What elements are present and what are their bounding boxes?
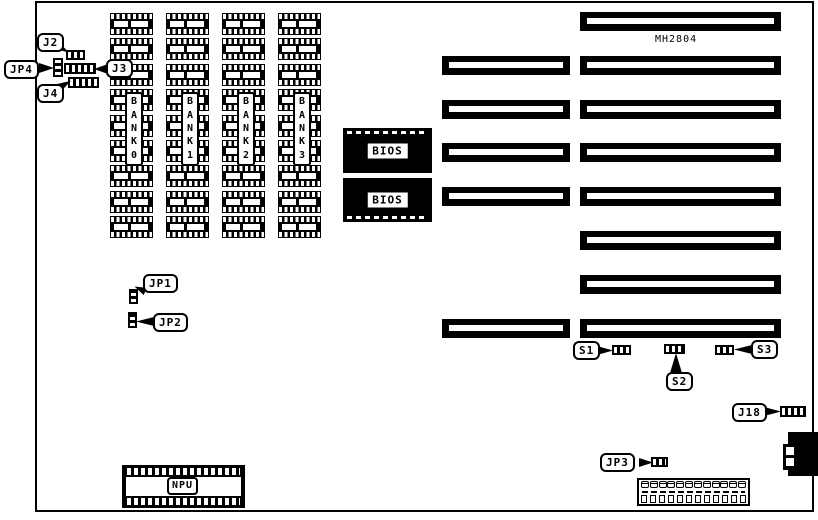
power-socket xyxy=(668,495,674,503)
power-socket xyxy=(686,495,692,503)
power-pin xyxy=(650,481,658,488)
memory-chip xyxy=(222,216,265,238)
connector-j2 xyxy=(66,50,85,60)
expansion-slot-segment xyxy=(580,143,781,162)
callout-j18: J18 xyxy=(732,403,767,422)
power-pin xyxy=(659,481,667,488)
power-socket xyxy=(713,495,719,503)
connector-jp1 xyxy=(129,289,138,304)
expansion-slot-segment xyxy=(442,319,570,338)
connector-jp2 xyxy=(128,312,137,328)
power-socket xyxy=(704,495,710,503)
bios-chip-notch-stripe xyxy=(347,131,428,134)
motherboard-diagram: BANK0BANK1BANK2BANK3 MH2804 BIOS BIOS J2… xyxy=(0,0,818,520)
expansion-slot-segment xyxy=(580,275,781,294)
bios-chip-2: BIOS xyxy=(343,178,432,222)
memory-chip xyxy=(166,216,209,238)
memory-chip xyxy=(166,165,209,187)
memory-chip xyxy=(278,64,321,86)
power-pin xyxy=(694,481,702,488)
memory-chip xyxy=(222,165,265,187)
memory-chip xyxy=(278,191,321,213)
power-pin xyxy=(720,481,728,488)
bios-chip-1: BIOS xyxy=(343,128,432,173)
memory-chip xyxy=(110,191,153,213)
power-pin xyxy=(712,481,720,488)
power-socket xyxy=(722,495,728,503)
memory-chip xyxy=(166,191,209,213)
connector-jp4 xyxy=(53,58,63,77)
power-socket xyxy=(740,495,746,503)
callout-j2: J2 xyxy=(37,33,64,52)
memory-chip xyxy=(110,38,153,60)
expansion-slot-segment xyxy=(442,100,570,119)
switch-s1 xyxy=(612,345,631,355)
expansion-slot-segment xyxy=(580,12,781,31)
callout-jp2: JP2 xyxy=(153,313,188,332)
power-socket xyxy=(731,495,737,503)
switch-s3 xyxy=(715,345,734,355)
keyboard-connector-hole xyxy=(786,458,794,466)
memory-chip xyxy=(222,64,265,86)
power-socket xyxy=(695,495,701,503)
power-divider xyxy=(642,491,745,493)
memory-chip xyxy=(222,13,265,35)
power-pin xyxy=(685,481,693,488)
connector-j3 xyxy=(64,63,96,74)
power-pin xyxy=(738,481,746,488)
callout-j3: J3 xyxy=(106,59,133,78)
callout-s1: S1 xyxy=(573,341,600,360)
chip-label-mh2804: MH2804 xyxy=(655,34,697,45)
memory-chip xyxy=(278,38,321,60)
connector-jp3 xyxy=(651,457,668,467)
memory-chip xyxy=(278,13,321,35)
callout-jp1: JP1 xyxy=(143,274,178,293)
power-socket xyxy=(650,495,656,503)
memory-chip xyxy=(222,191,265,213)
bank-label: BANK3 xyxy=(293,92,311,166)
npu-pin-row xyxy=(127,468,240,475)
power-socket-row xyxy=(641,495,746,503)
callout-npu: NPU xyxy=(167,477,198,495)
bios-label: BIOS xyxy=(367,143,408,158)
connector-j4 xyxy=(68,77,99,88)
keyboard-connector-hole xyxy=(786,447,794,455)
callout-jp4: JP4 xyxy=(4,60,39,79)
callout-s2: S2 xyxy=(666,372,693,391)
memory-chip xyxy=(110,13,153,35)
bank-label: BANK0 xyxy=(125,92,143,166)
bios-chip-notch-stripe xyxy=(347,216,428,219)
power-pin xyxy=(667,481,675,488)
memory-chip xyxy=(166,13,209,35)
power-pin xyxy=(703,481,711,488)
expansion-slot-segment xyxy=(442,56,570,75)
expansion-slot-segment xyxy=(580,100,781,119)
expansion-slot-segment xyxy=(442,187,570,206)
callout-j4: J4 xyxy=(37,84,64,103)
bios-label: BIOS xyxy=(367,193,408,208)
memory-chip xyxy=(166,64,209,86)
memory-chip xyxy=(110,165,153,187)
memory-chip xyxy=(278,165,321,187)
callout-s3: S3 xyxy=(751,340,778,359)
expansion-slot-segment xyxy=(442,143,570,162)
expansion-slot-segment xyxy=(580,319,781,338)
power-socket xyxy=(659,495,665,503)
power-socket xyxy=(677,495,683,503)
power-pin xyxy=(729,481,737,488)
memory-chip xyxy=(222,38,265,60)
memory-chip xyxy=(278,216,321,238)
connector-j18 xyxy=(780,406,806,417)
expansion-slot-segment xyxy=(580,231,781,250)
power-socket xyxy=(641,495,647,503)
power-pin xyxy=(641,481,649,488)
bank-label: BANK1 xyxy=(181,92,199,166)
memory-chip xyxy=(166,38,209,60)
memory-chip xyxy=(110,216,153,238)
expansion-slot-segment xyxy=(580,187,781,206)
bank-label: BANK2 xyxy=(237,92,255,166)
switch-s2 xyxy=(664,344,685,354)
expansion-slot-segment xyxy=(580,56,781,75)
npu-pin-row xyxy=(127,498,240,505)
callout-jp3: JP3 xyxy=(600,453,635,472)
power-pin-row xyxy=(641,481,746,488)
power-connector xyxy=(637,478,750,506)
power-pin xyxy=(676,481,684,488)
